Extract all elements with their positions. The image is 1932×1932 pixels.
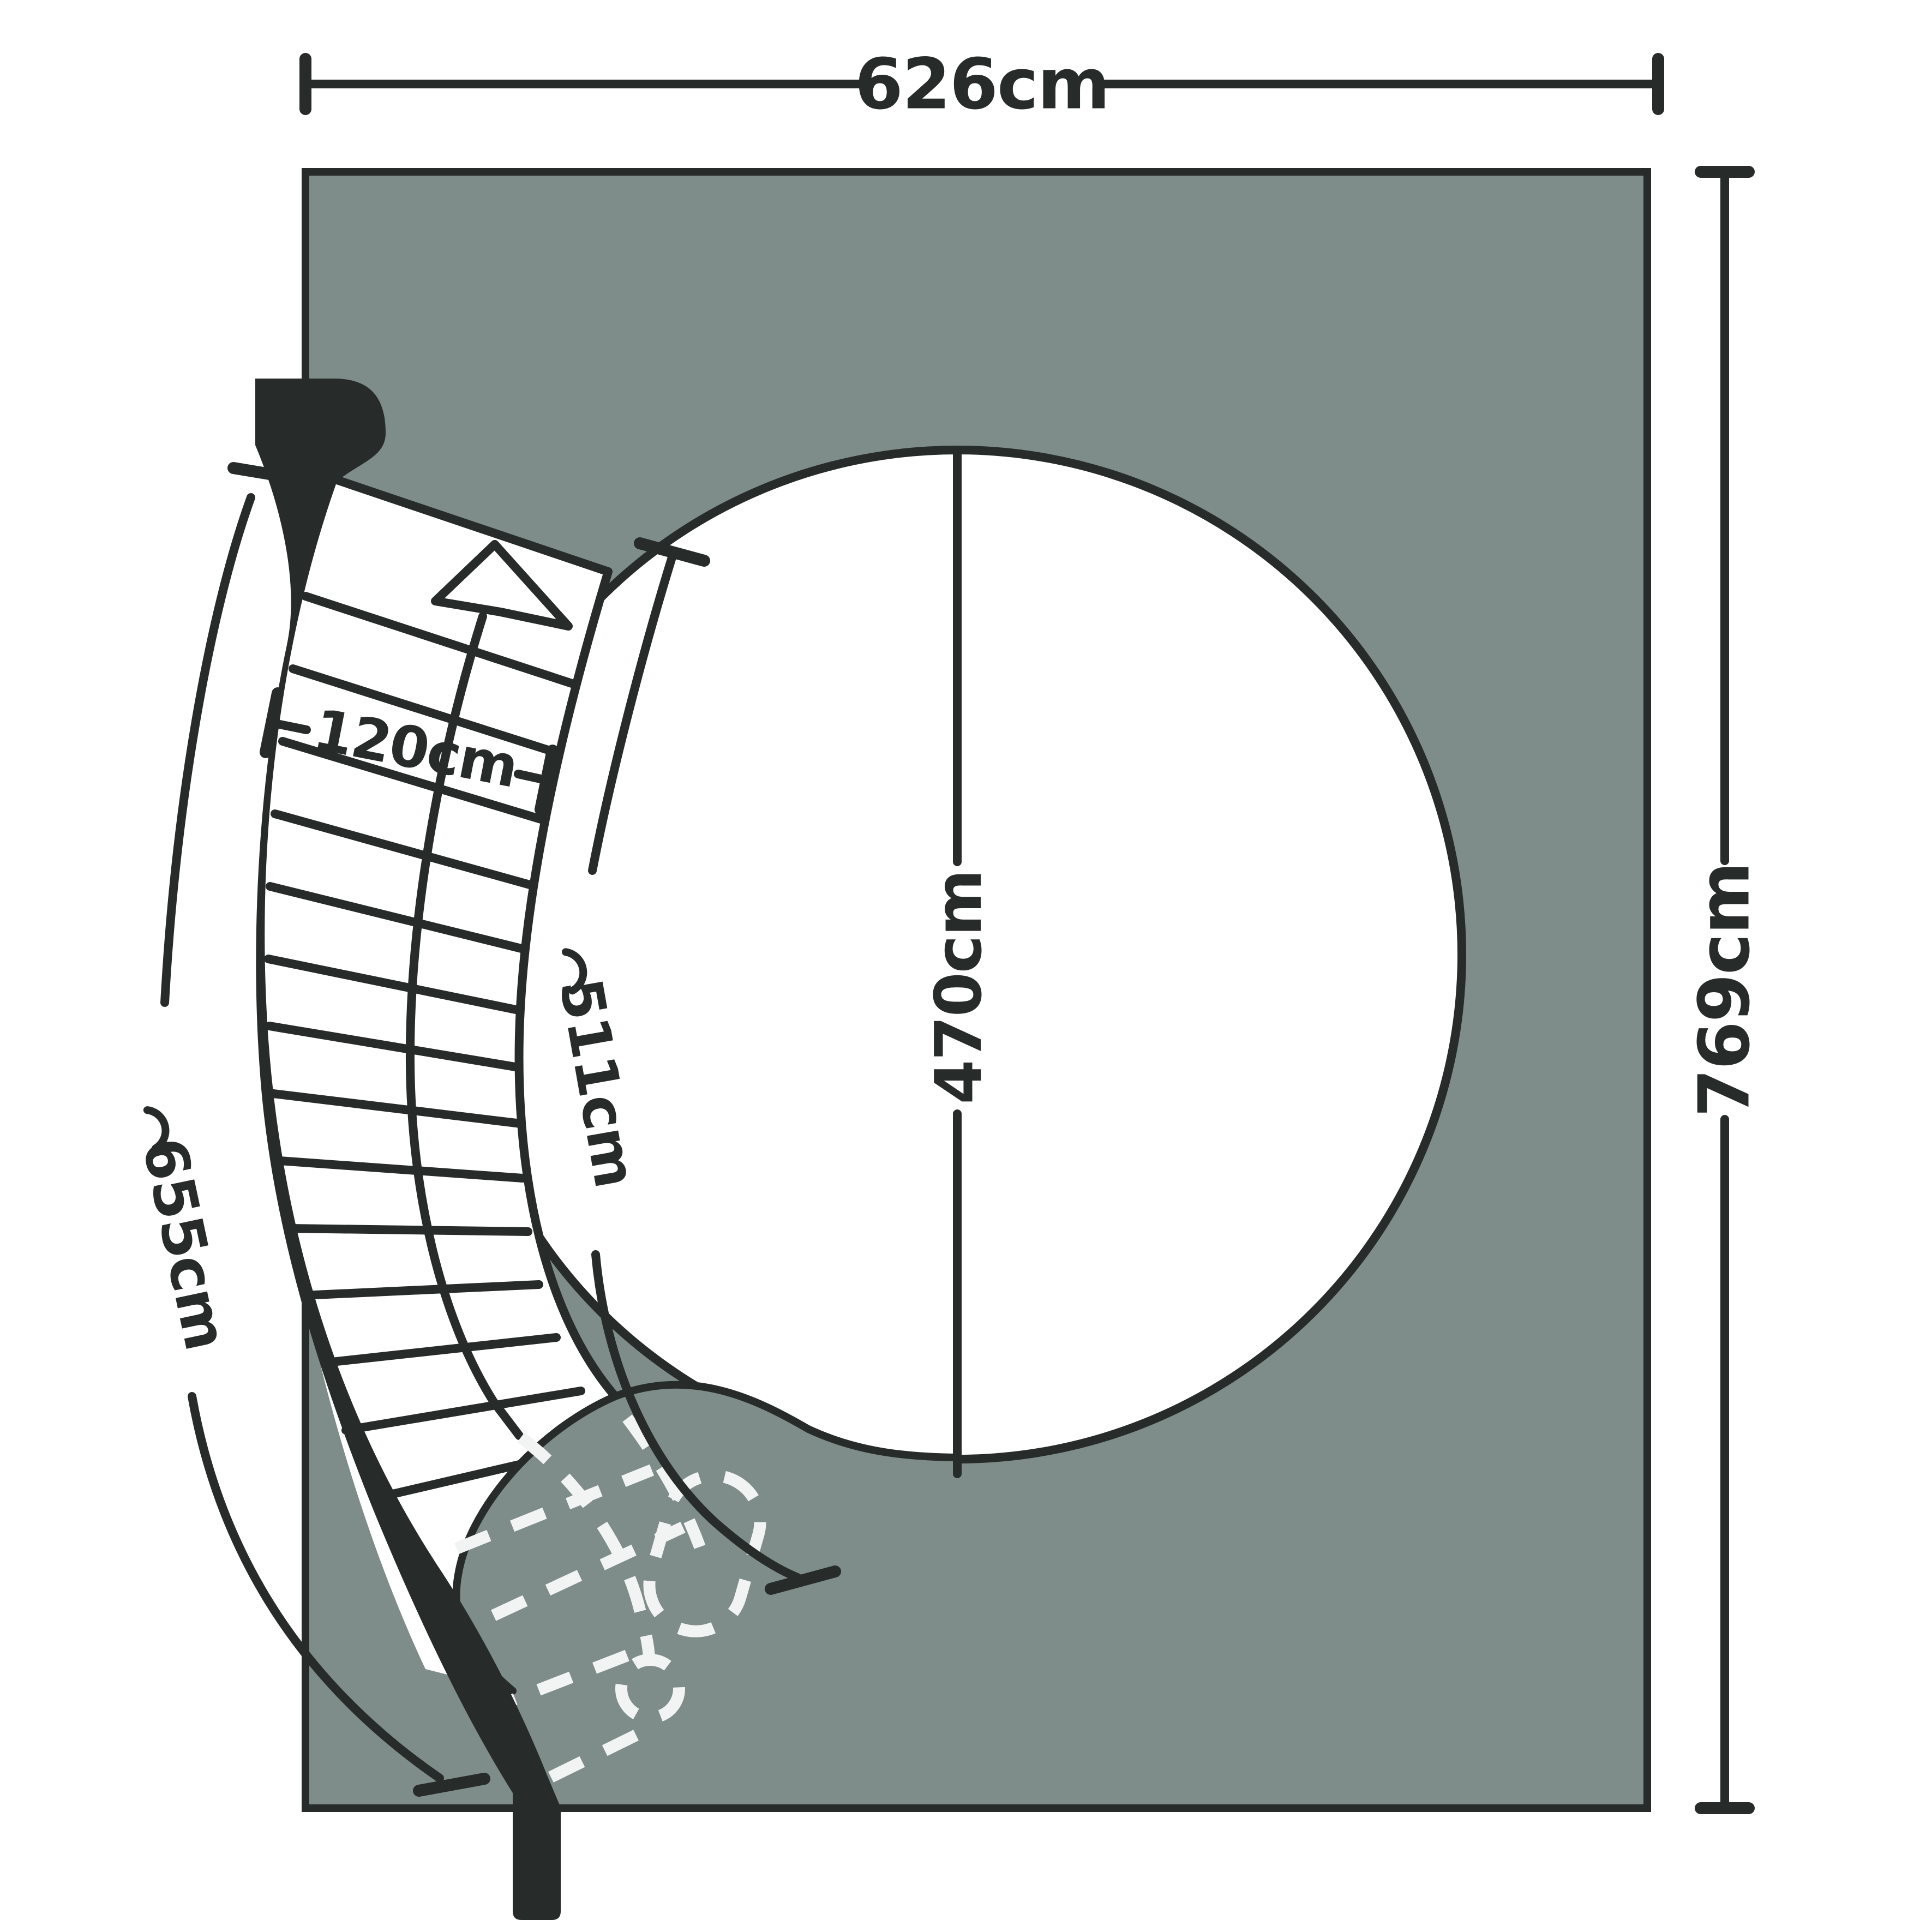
plan-height-label: 769cm [1684, 863, 1766, 1117]
floor-plan-svg: 655cm 511cm 120cm 470cm 626cm [0, 0, 1932, 1932]
outer-arc-label: 655cm [129, 1132, 240, 1355]
step-line [290, 1228, 528, 1232]
plan-width-label: 626cm [855, 44, 1109, 125]
floor-plan-page: 655cm 511cm 120cm 470cm 626cm [0, 0, 1932, 1932]
dimension-plan-width: 626cm [305, 44, 1658, 125]
outer-arc-line [165, 497, 251, 1003]
opening-diameter-label: 470cm [921, 870, 996, 1104]
dimension-plan-height: 769cm [1684, 172, 1766, 1808]
